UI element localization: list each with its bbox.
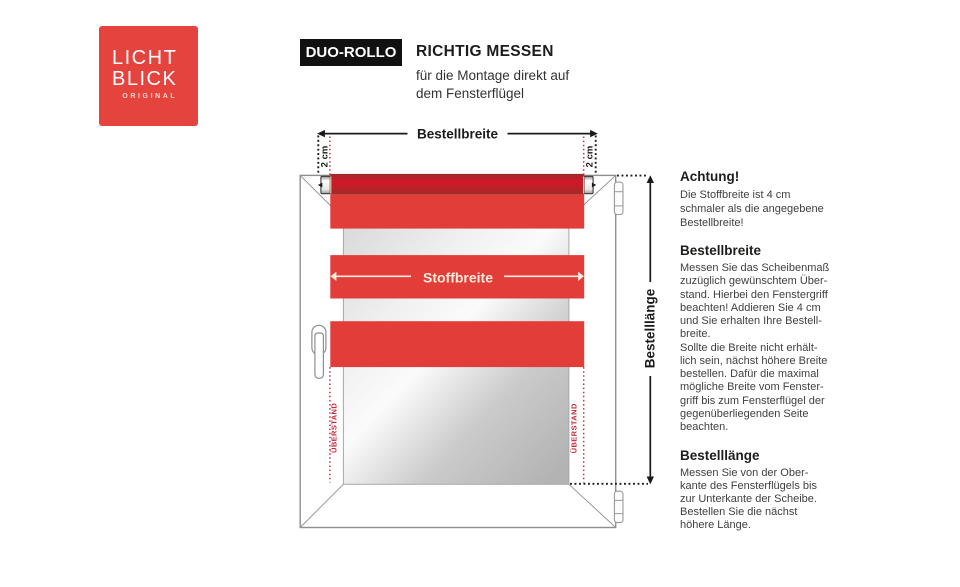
svg-text:Bestellbreite: Bestellbreite [417, 126, 499, 141]
svg-text:ÜBERSTAND: ÜBERSTAND [330, 403, 339, 453]
svg-text:Bestelllänge: Bestelllänge [643, 288, 658, 368]
svg-text:ÜBERSTAND: ÜBERSTAND [570, 403, 579, 453]
svg-text:2 cm: 2 cm [585, 146, 596, 168]
svg-text:Stoffbreite: Stoffbreite [423, 270, 493, 286]
svg-text:2 cm: 2 cm [319, 146, 330, 168]
